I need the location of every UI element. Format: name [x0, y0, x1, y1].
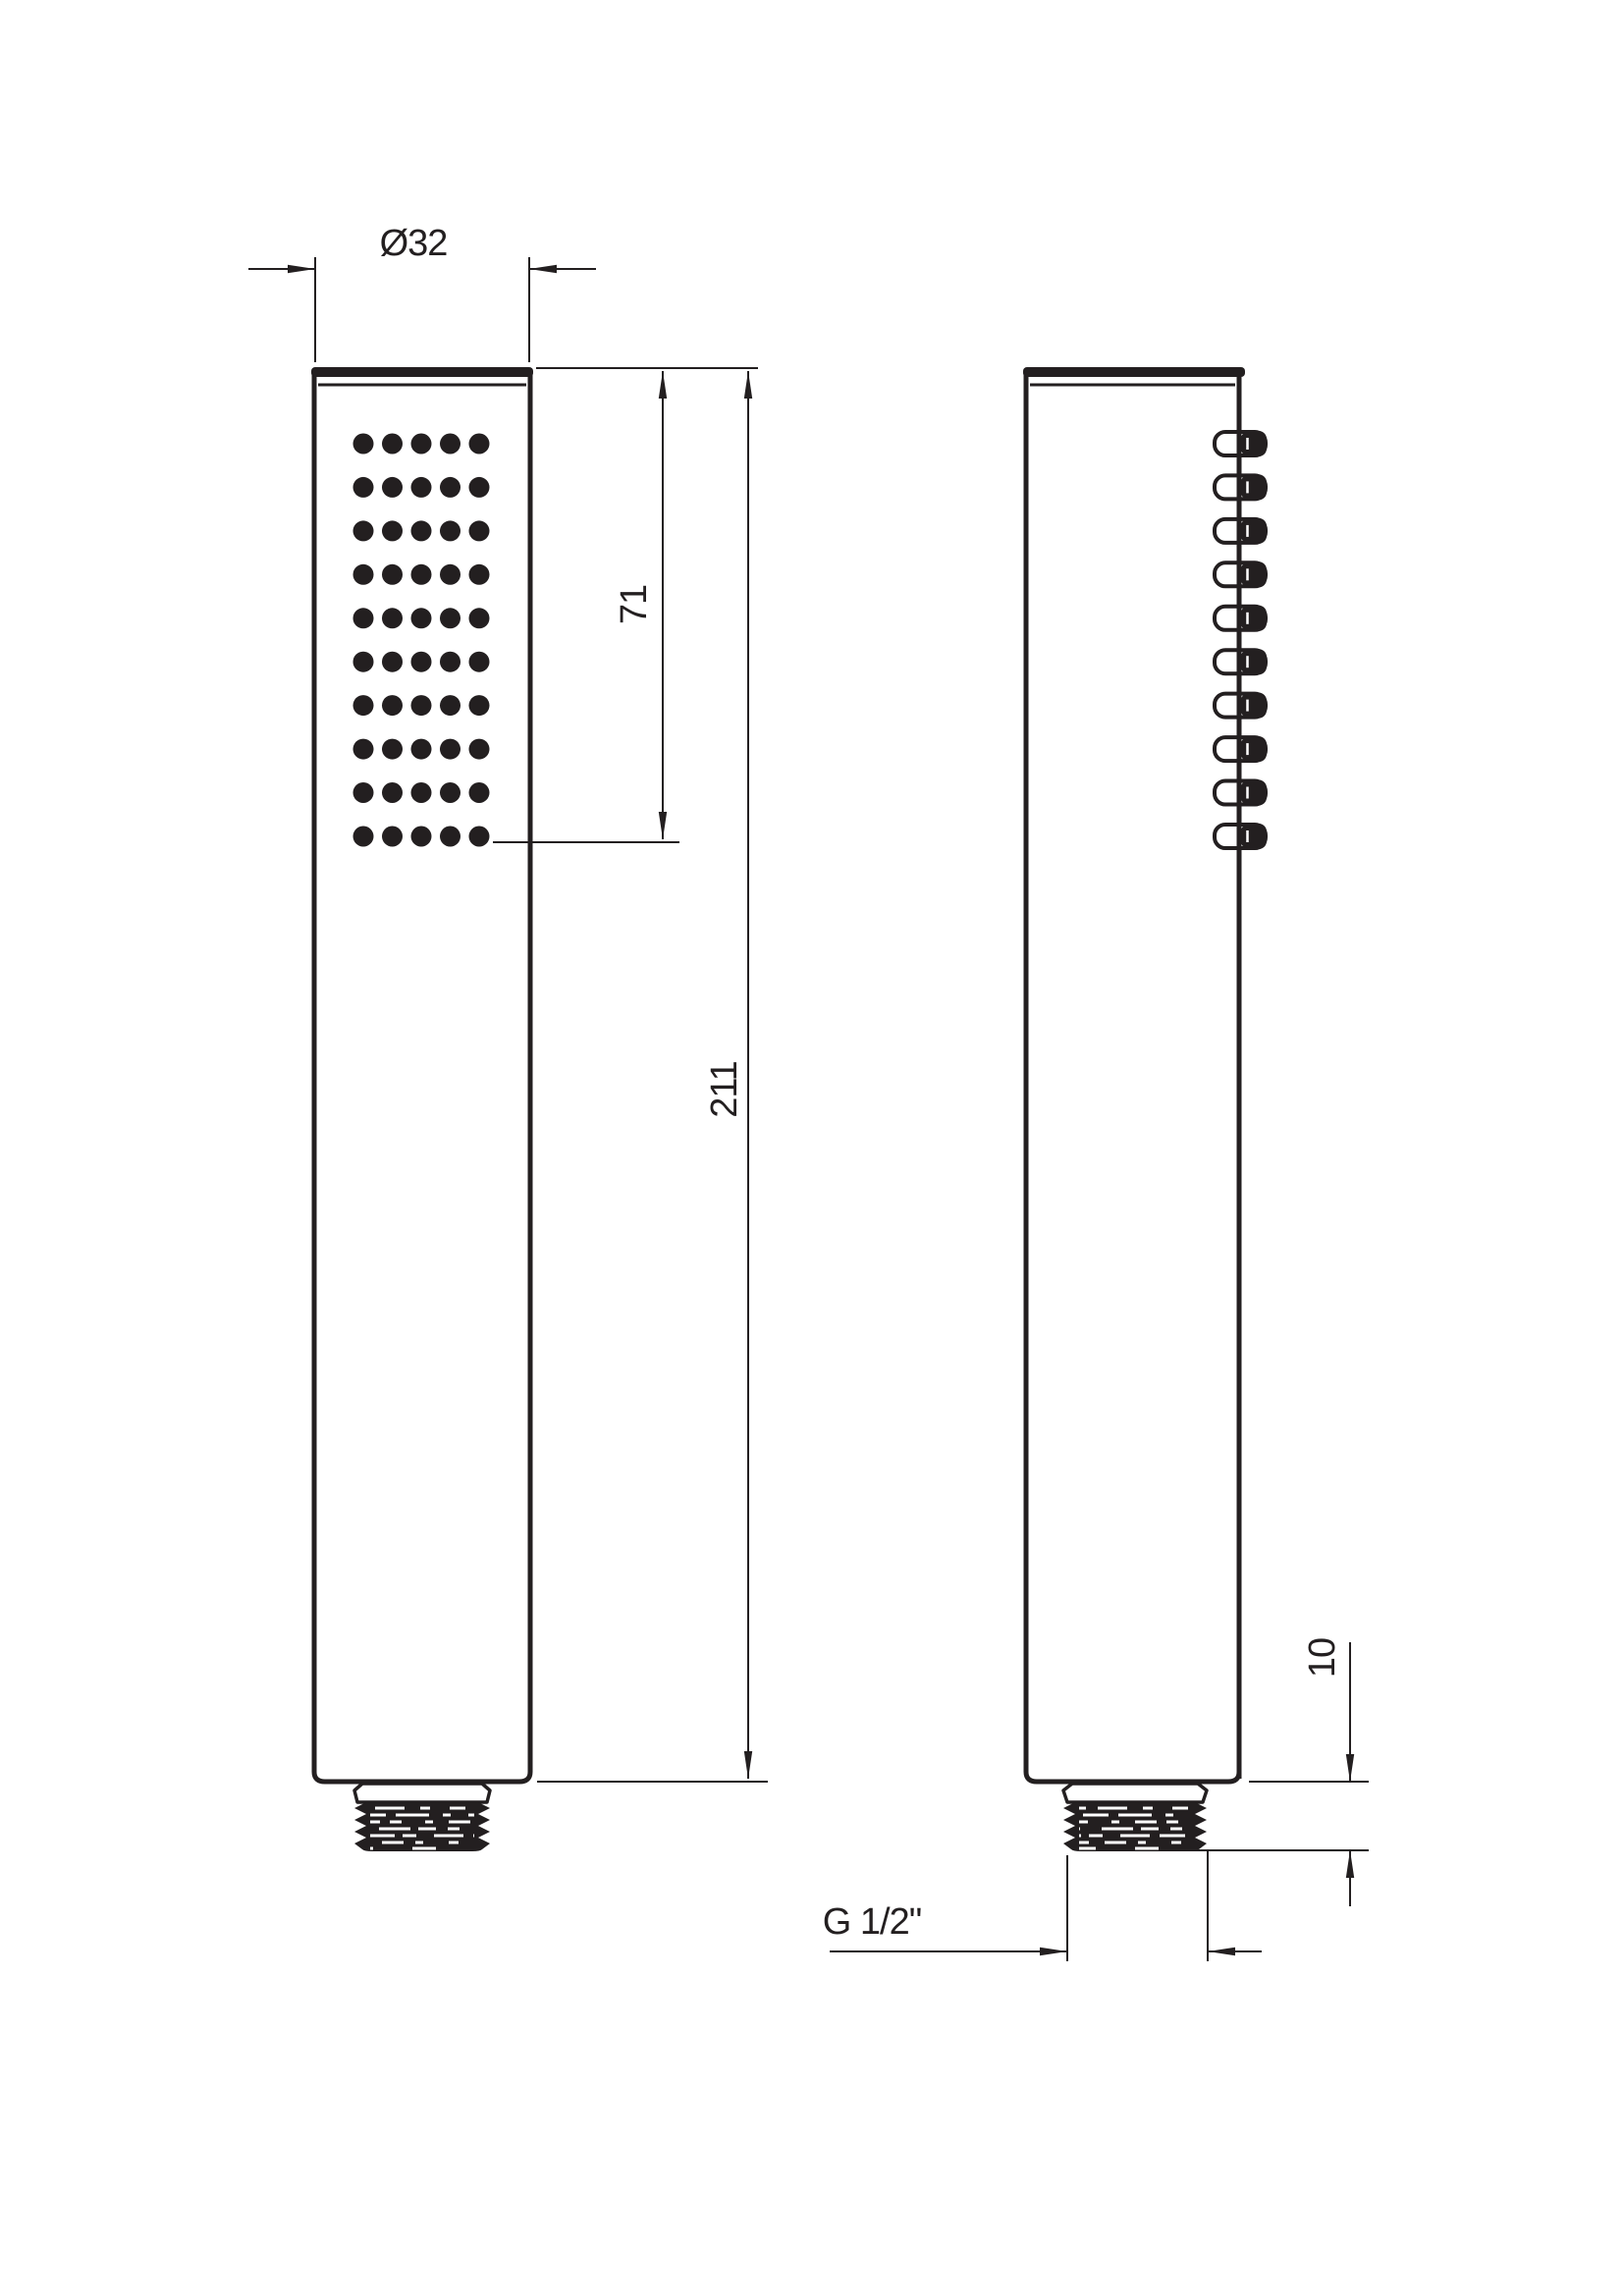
- side-thread-connector: [1063, 1784, 1207, 1851]
- dimension-thread-spec: G 1/2": [823, 1851, 1262, 1961]
- dimension-overall-length: 211: [537, 371, 768, 1782]
- front-thread-connector: [354, 1784, 490, 1851]
- nozzle-tip: [1241, 693, 1267, 719]
- nozzle-tip: [1241, 649, 1267, 674]
- drawing-page: Ø32 71 211 10 G 1/2": [0, 0, 1624, 2296]
- spray-dot: [353, 782, 374, 803]
- spray-dot: [382, 434, 403, 454]
- nozzle-tip: [1241, 824, 1267, 849]
- front-view: [311, 367, 533, 1851]
- spray-dot: [353, 652, 374, 672]
- nozzle-tip: [1241, 474, 1267, 500]
- spray-dot: [469, 739, 490, 760]
- spray-dot: [382, 477, 403, 498]
- spray-dot: [411, 652, 432, 672]
- spray-dot: [411, 564, 432, 585]
- nozzle-tip: [1241, 780, 1267, 806]
- spray-dot: [469, 434, 490, 454]
- spray-dot: [411, 827, 432, 847]
- spray-dot: [382, 739, 403, 760]
- spray-dot: [469, 652, 490, 672]
- spray-dot: [353, 827, 374, 847]
- spray-dot: [469, 782, 490, 803]
- spray-dot: [469, 520, 490, 541]
- spray-dot: [469, 608, 490, 628]
- spray-length-value: 71: [614, 585, 655, 624]
- spray-dot: [411, 434, 432, 454]
- front-cap: [311, 367, 533, 377]
- spray-dot: [440, 434, 460, 454]
- spray-dot: [469, 564, 490, 585]
- nozzle-tip: [1241, 606, 1267, 631]
- nozzle-tip: [1241, 561, 1267, 587]
- thread-spec-value: G 1/2": [823, 1901, 921, 1943]
- spray-dot: [440, 652, 460, 672]
- spray-dot: [440, 520, 460, 541]
- spray-dot: [382, 520, 403, 541]
- spray-dot: [411, 520, 432, 541]
- spray-dot: [353, 477, 374, 498]
- spray-dot: [440, 608, 460, 628]
- spray-dot: [440, 782, 460, 803]
- spray-dot: [411, 695, 432, 716]
- spray-dot: [440, 477, 460, 498]
- dimension-diameter: Ø32: [248, 223, 596, 362]
- spray-dot: [440, 739, 460, 760]
- spray-dot: [469, 477, 490, 498]
- spray-dot: [469, 827, 490, 847]
- spray-dot: [382, 782, 403, 803]
- spray-dot: [469, 695, 490, 716]
- side-view: [1023, 367, 1267, 1851]
- spray-dot: [411, 608, 432, 628]
- spray-dot: [382, 827, 403, 847]
- spray-dot: [440, 695, 460, 716]
- spray-dot: [440, 827, 460, 847]
- spray-dot: [353, 564, 374, 585]
- nozzle-tip: [1241, 518, 1267, 544]
- overall-length-value: 211: [704, 1061, 745, 1118]
- spray-dot: [353, 695, 374, 716]
- spray-dot: [353, 520, 374, 541]
- spray-dot: [353, 739, 374, 760]
- thread-collar: [354, 1784, 490, 1802]
- spray-dot: [382, 652, 403, 672]
- spray-dot: [411, 782, 432, 803]
- spray-dot: [411, 739, 432, 760]
- spray-dot: [353, 608, 374, 628]
- side-cap: [1023, 367, 1245, 377]
- thread-collar: [1063, 1784, 1207, 1802]
- spray-dot: [382, 695, 403, 716]
- spray-dot: [411, 477, 432, 498]
- technical-drawing: Ø32 71 211 10 G 1/2": [0, 0, 1624, 2296]
- side-body: [1026, 371, 1239, 1782]
- spray-dot: [440, 564, 460, 585]
- spray-dot: [382, 564, 403, 585]
- nozzle-tip: [1241, 736, 1267, 762]
- diameter-value: Ø32: [380, 223, 448, 264]
- spray-dot: [382, 608, 403, 628]
- thread-length-value: 10: [1302, 1638, 1343, 1678]
- nozzle-tip: [1241, 431, 1267, 456]
- spray-dot: [353, 434, 374, 454]
